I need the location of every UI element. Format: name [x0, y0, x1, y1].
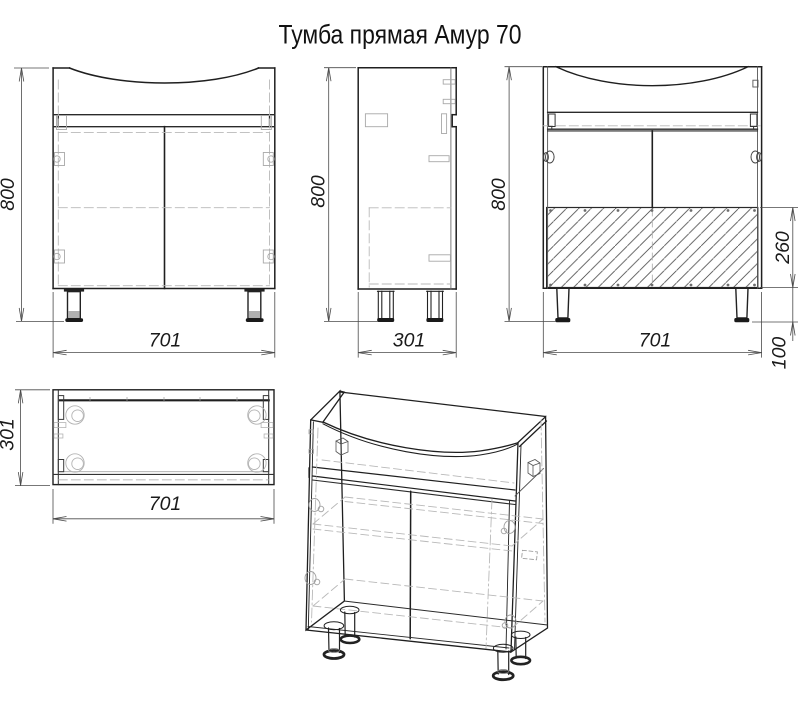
- svg-text:800: 800: [0, 178, 19, 211]
- svg-text:301: 301: [0, 418, 19, 451]
- svg-text:Тумба прямая Амур 70: Тумба прямая Амур 70: [279, 20, 522, 50]
- svg-text:800: 800: [308, 175, 330, 208]
- svg-text:701: 701: [149, 493, 182, 515]
- svg-text:301: 301: [393, 330, 426, 352]
- svg-text:701: 701: [639, 330, 672, 352]
- svg-text:800: 800: [488, 178, 510, 211]
- svg-text:100: 100: [769, 337, 791, 370]
- svg-text:701: 701: [149, 330, 182, 352]
- svg-text:260: 260: [772, 231, 794, 265]
